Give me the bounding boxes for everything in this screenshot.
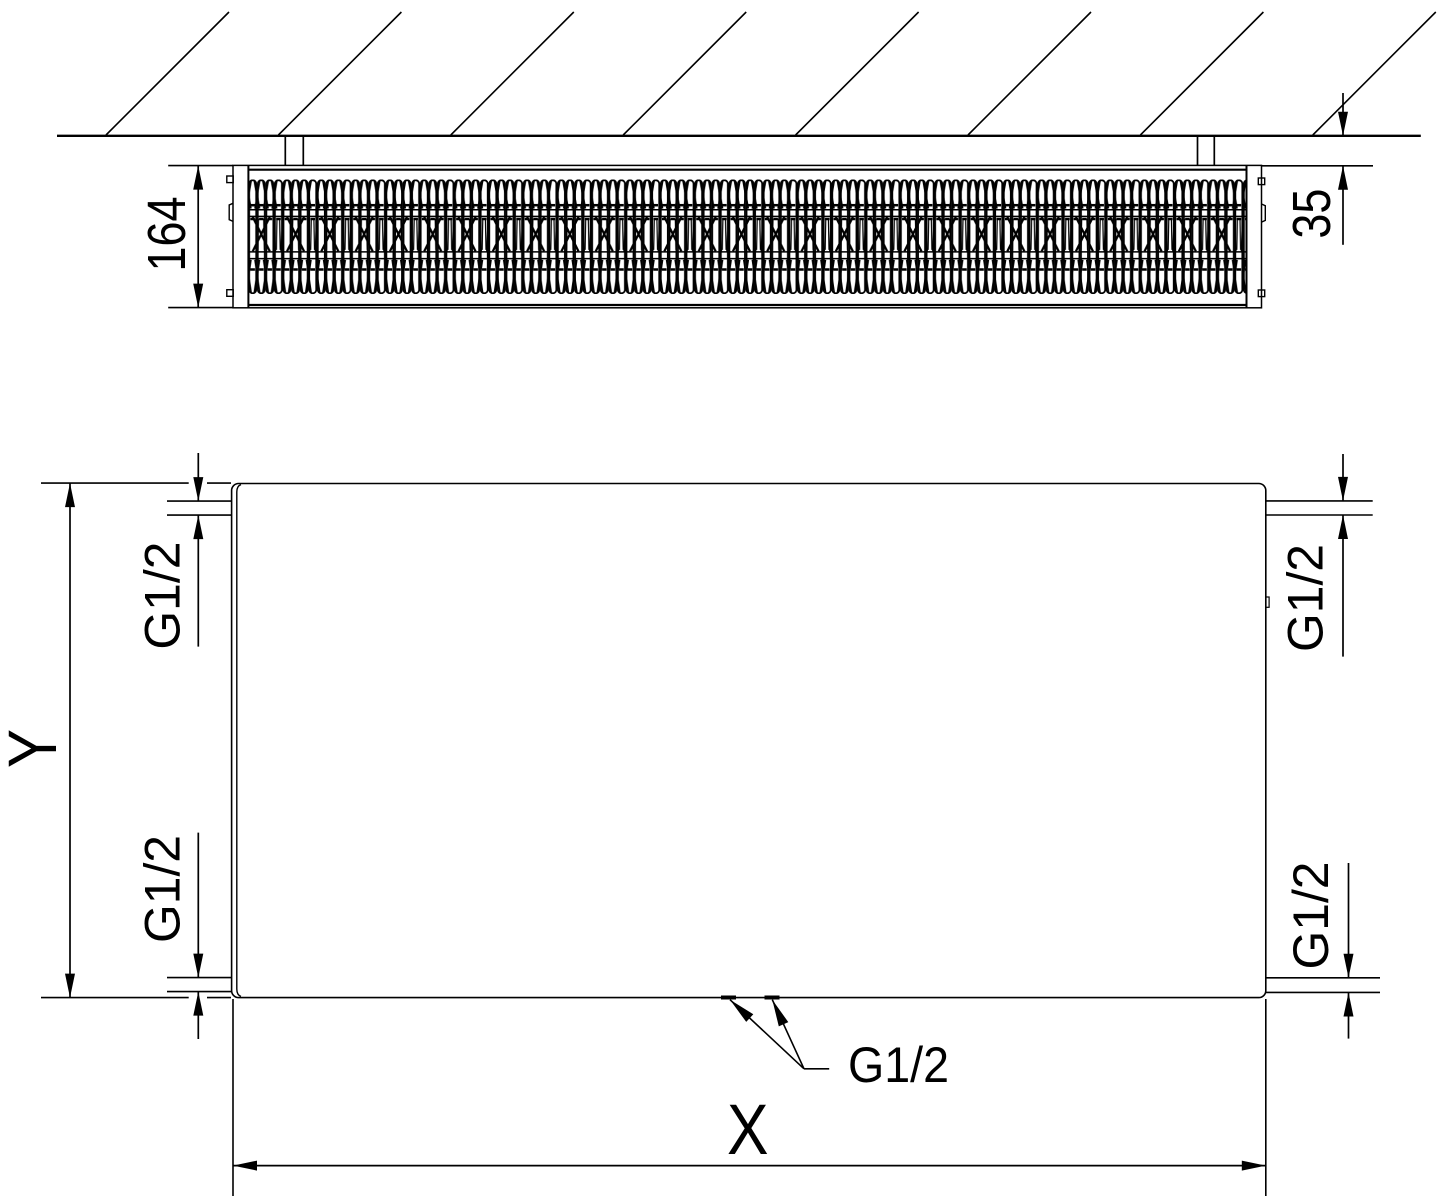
svg-text:G1/2: G1/2: [135, 835, 191, 943]
svg-text:Y: Y: [0, 729, 71, 768]
svg-text:G1/2: G1/2: [848, 1037, 949, 1093]
svg-text:G1/2: G1/2: [1283, 862, 1339, 970]
svg-text:G1/2: G1/2: [135, 542, 191, 650]
svg-text:164: 164: [137, 197, 197, 272]
svg-text:G1/2: G1/2: [1278, 544, 1334, 652]
svg-text:35: 35: [1282, 189, 1342, 239]
svg-text:X: X: [727, 1091, 769, 1170]
